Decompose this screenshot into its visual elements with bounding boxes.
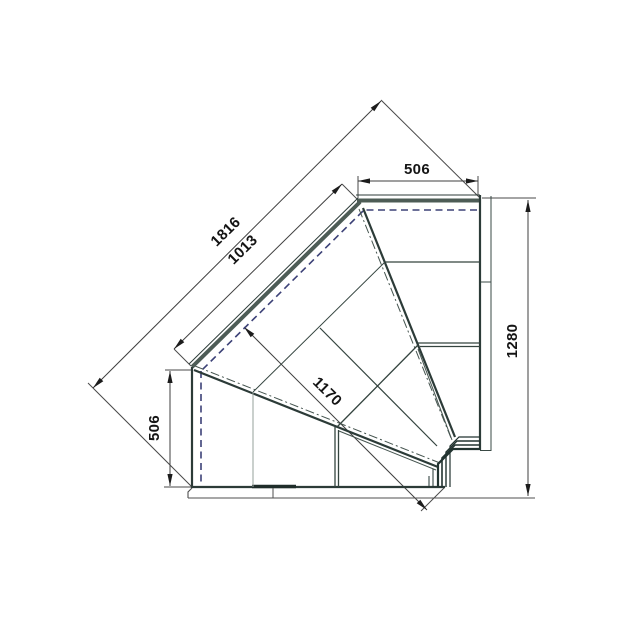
dim-line-1013 <box>174 184 342 349</box>
arrow-1280-bottom <box>525 484 530 496</box>
dim-text-left-506: 506 <box>146 415 163 441</box>
arrow-top506-right <box>466 178 478 183</box>
bottom-wing-band-inner <box>339 431 436 470</box>
arrow-left506-bottom <box>167 474 172 486</box>
right-wing-band-inner <box>418 349 452 440</box>
step-band-3 <box>442 445 480 487</box>
drawing-canvas: 506 1280 506 1816 1013 1170 <box>0 0 640 640</box>
dim-text-top-506: 506 <box>404 161 430 178</box>
arrow-1280-top <box>525 200 530 212</box>
right-wing-glass-band <box>363 208 455 437</box>
dim-text-1170: 1170 <box>309 374 345 410</box>
extension-1013-lower <box>174 349 191 366</box>
arrow-top506-left <box>358 178 370 183</box>
dimension-labels: 506 1280 506 1816 1013 1170 <box>146 161 521 441</box>
arrow-left506-top <box>167 371 172 383</box>
right-wing-glass-dashdot <box>359 209 451 438</box>
extension-bottom-left <box>88 383 192 487</box>
extension-apex <box>381 100 480 198</box>
technical-drawing-svg: 506 1280 506 1816 1013 1170 <box>0 0 640 640</box>
dim-text-right-1280: 1280 <box>504 324 521 359</box>
slant-edge-thin <box>189 198 358 364</box>
plinth-left-end <box>188 488 192 498</box>
